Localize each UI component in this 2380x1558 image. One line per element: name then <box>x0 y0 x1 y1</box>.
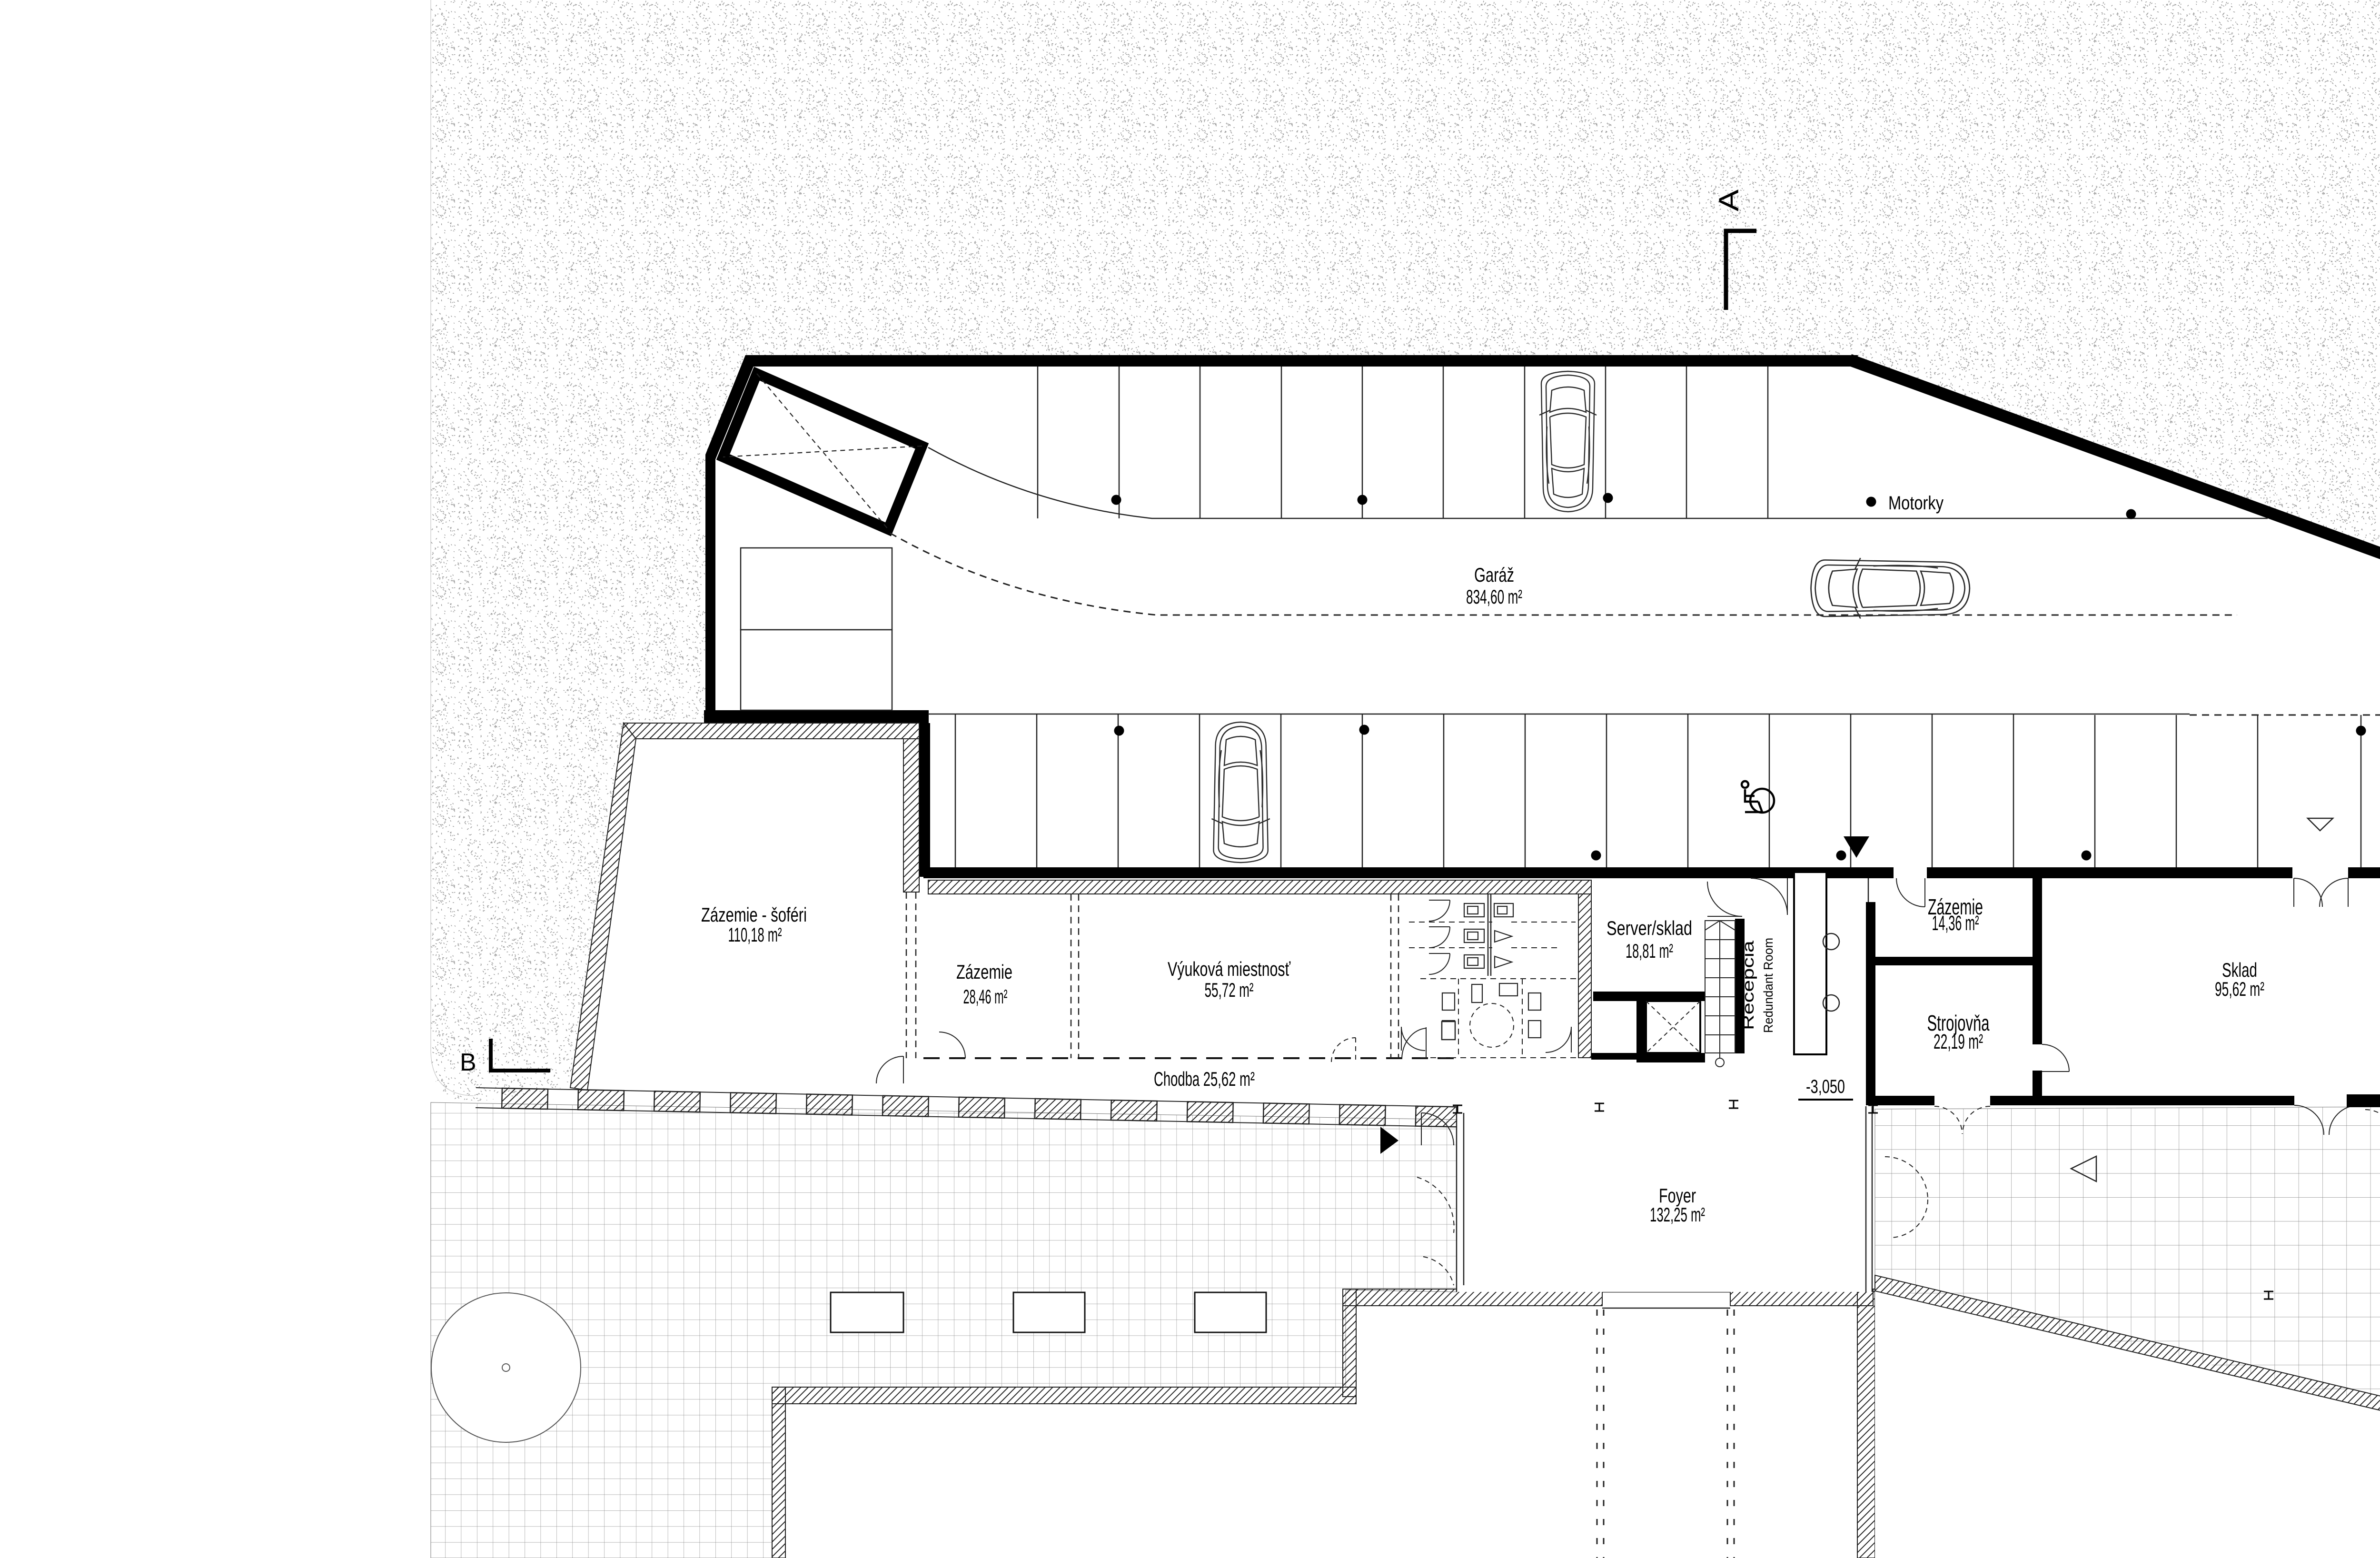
svg-text:28,46 m²: 28,46 m² <box>963 985 1008 1008</box>
svg-text:Recepcia: Recepcia <box>1739 941 1757 1030</box>
svg-text:Motorky: Motorky <box>1888 493 1944 514</box>
svg-text:18,81 m²: 18,81 m² <box>1626 940 1673 962</box>
svg-text:A: A <box>1714 189 1745 211</box>
svg-text:834,60 m²: 834,60 m² <box>1466 585 1522 608</box>
svg-text:Redundant Room: Redundant Room <box>1761 938 1775 1033</box>
svg-text:110,18 m²: 110,18 m² <box>728 923 782 946</box>
svg-text:Chodba 25,62 m²: Chodba 25,62 m² <box>1154 1068 1255 1090</box>
svg-text:Zázemie: Zázemie <box>956 961 1012 983</box>
svg-text:14,36 m²: 14,36 m² <box>1932 912 1979 935</box>
svg-text:Server/sklad: Server/sklad <box>1606 917 1692 939</box>
svg-text:Zázemie - šoféri: Zázemie - šoféri <box>701 903 807 926</box>
svg-text:Garáž: Garáž <box>1474 564 1514 586</box>
svg-text:132,25 m²: 132,25 m² <box>1650 1203 1705 1226</box>
svg-text:95,62 m²: 95,62 m² <box>2215 978 2264 1000</box>
svg-text:22,19 m²: 22,19 m² <box>1934 1030 1983 1053</box>
svg-text:55,72 m²: 55,72 m² <box>1205 979 1254 1001</box>
svg-text:-3,050: -3,050 <box>1806 1076 1845 1097</box>
svg-text:Výuková miestnosť: Výuková miestnosť <box>1168 958 1291 980</box>
svg-text:B: B <box>460 1049 476 1076</box>
